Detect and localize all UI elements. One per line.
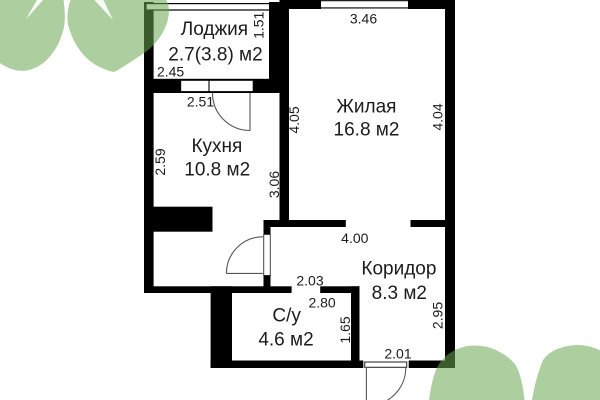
svg-text:1.65: 1.65 [337, 316, 353, 343]
svg-text:Коридор: Коридор [361, 259, 436, 280]
svg-text:10.8 м2: 10.8 м2 [184, 160, 250, 181]
svg-text:2.95: 2.95 [430, 302, 446, 329]
svg-text:1.51: 1.51 [251, 11, 267, 38]
svg-text:4.00: 4.00 [341, 230, 368, 246]
svg-text:2.7(3.8) м2: 2.7(3.8) м2 [168, 45, 262, 66]
svg-text:Лоджия: Лоджия [181, 19, 248, 40]
svg-text:2.51: 2.51 [187, 94, 214, 110]
svg-text:2.01: 2.01 [384, 346, 411, 362]
svg-text:Жилая: Жилая [336, 97, 396, 118]
svg-text:2.45: 2.45 [157, 64, 184, 80]
svg-text:2.80: 2.80 [308, 295, 335, 311]
svg-text:4.05: 4.05 [286, 106, 302, 133]
svg-text:3.06: 3.06 [266, 171, 282, 198]
svg-text:С/у: С/у [272, 305, 301, 326]
svg-text:16.8 м2: 16.8 м2 [334, 119, 400, 140]
svg-text:3.46: 3.46 [350, 11, 377, 27]
svg-text:2.59: 2.59 [152, 148, 168, 175]
svg-text:Кухня: Кухня [191, 136, 242, 157]
svg-text:4.6 м2: 4.6 м2 [258, 330, 313, 351]
svg-text:8.3 м2: 8.3 м2 [372, 283, 427, 304]
svg-text:4.04: 4.04 [430, 103, 446, 130]
svg-text:2.03: 2.03 [296, 273, 323, 289]
